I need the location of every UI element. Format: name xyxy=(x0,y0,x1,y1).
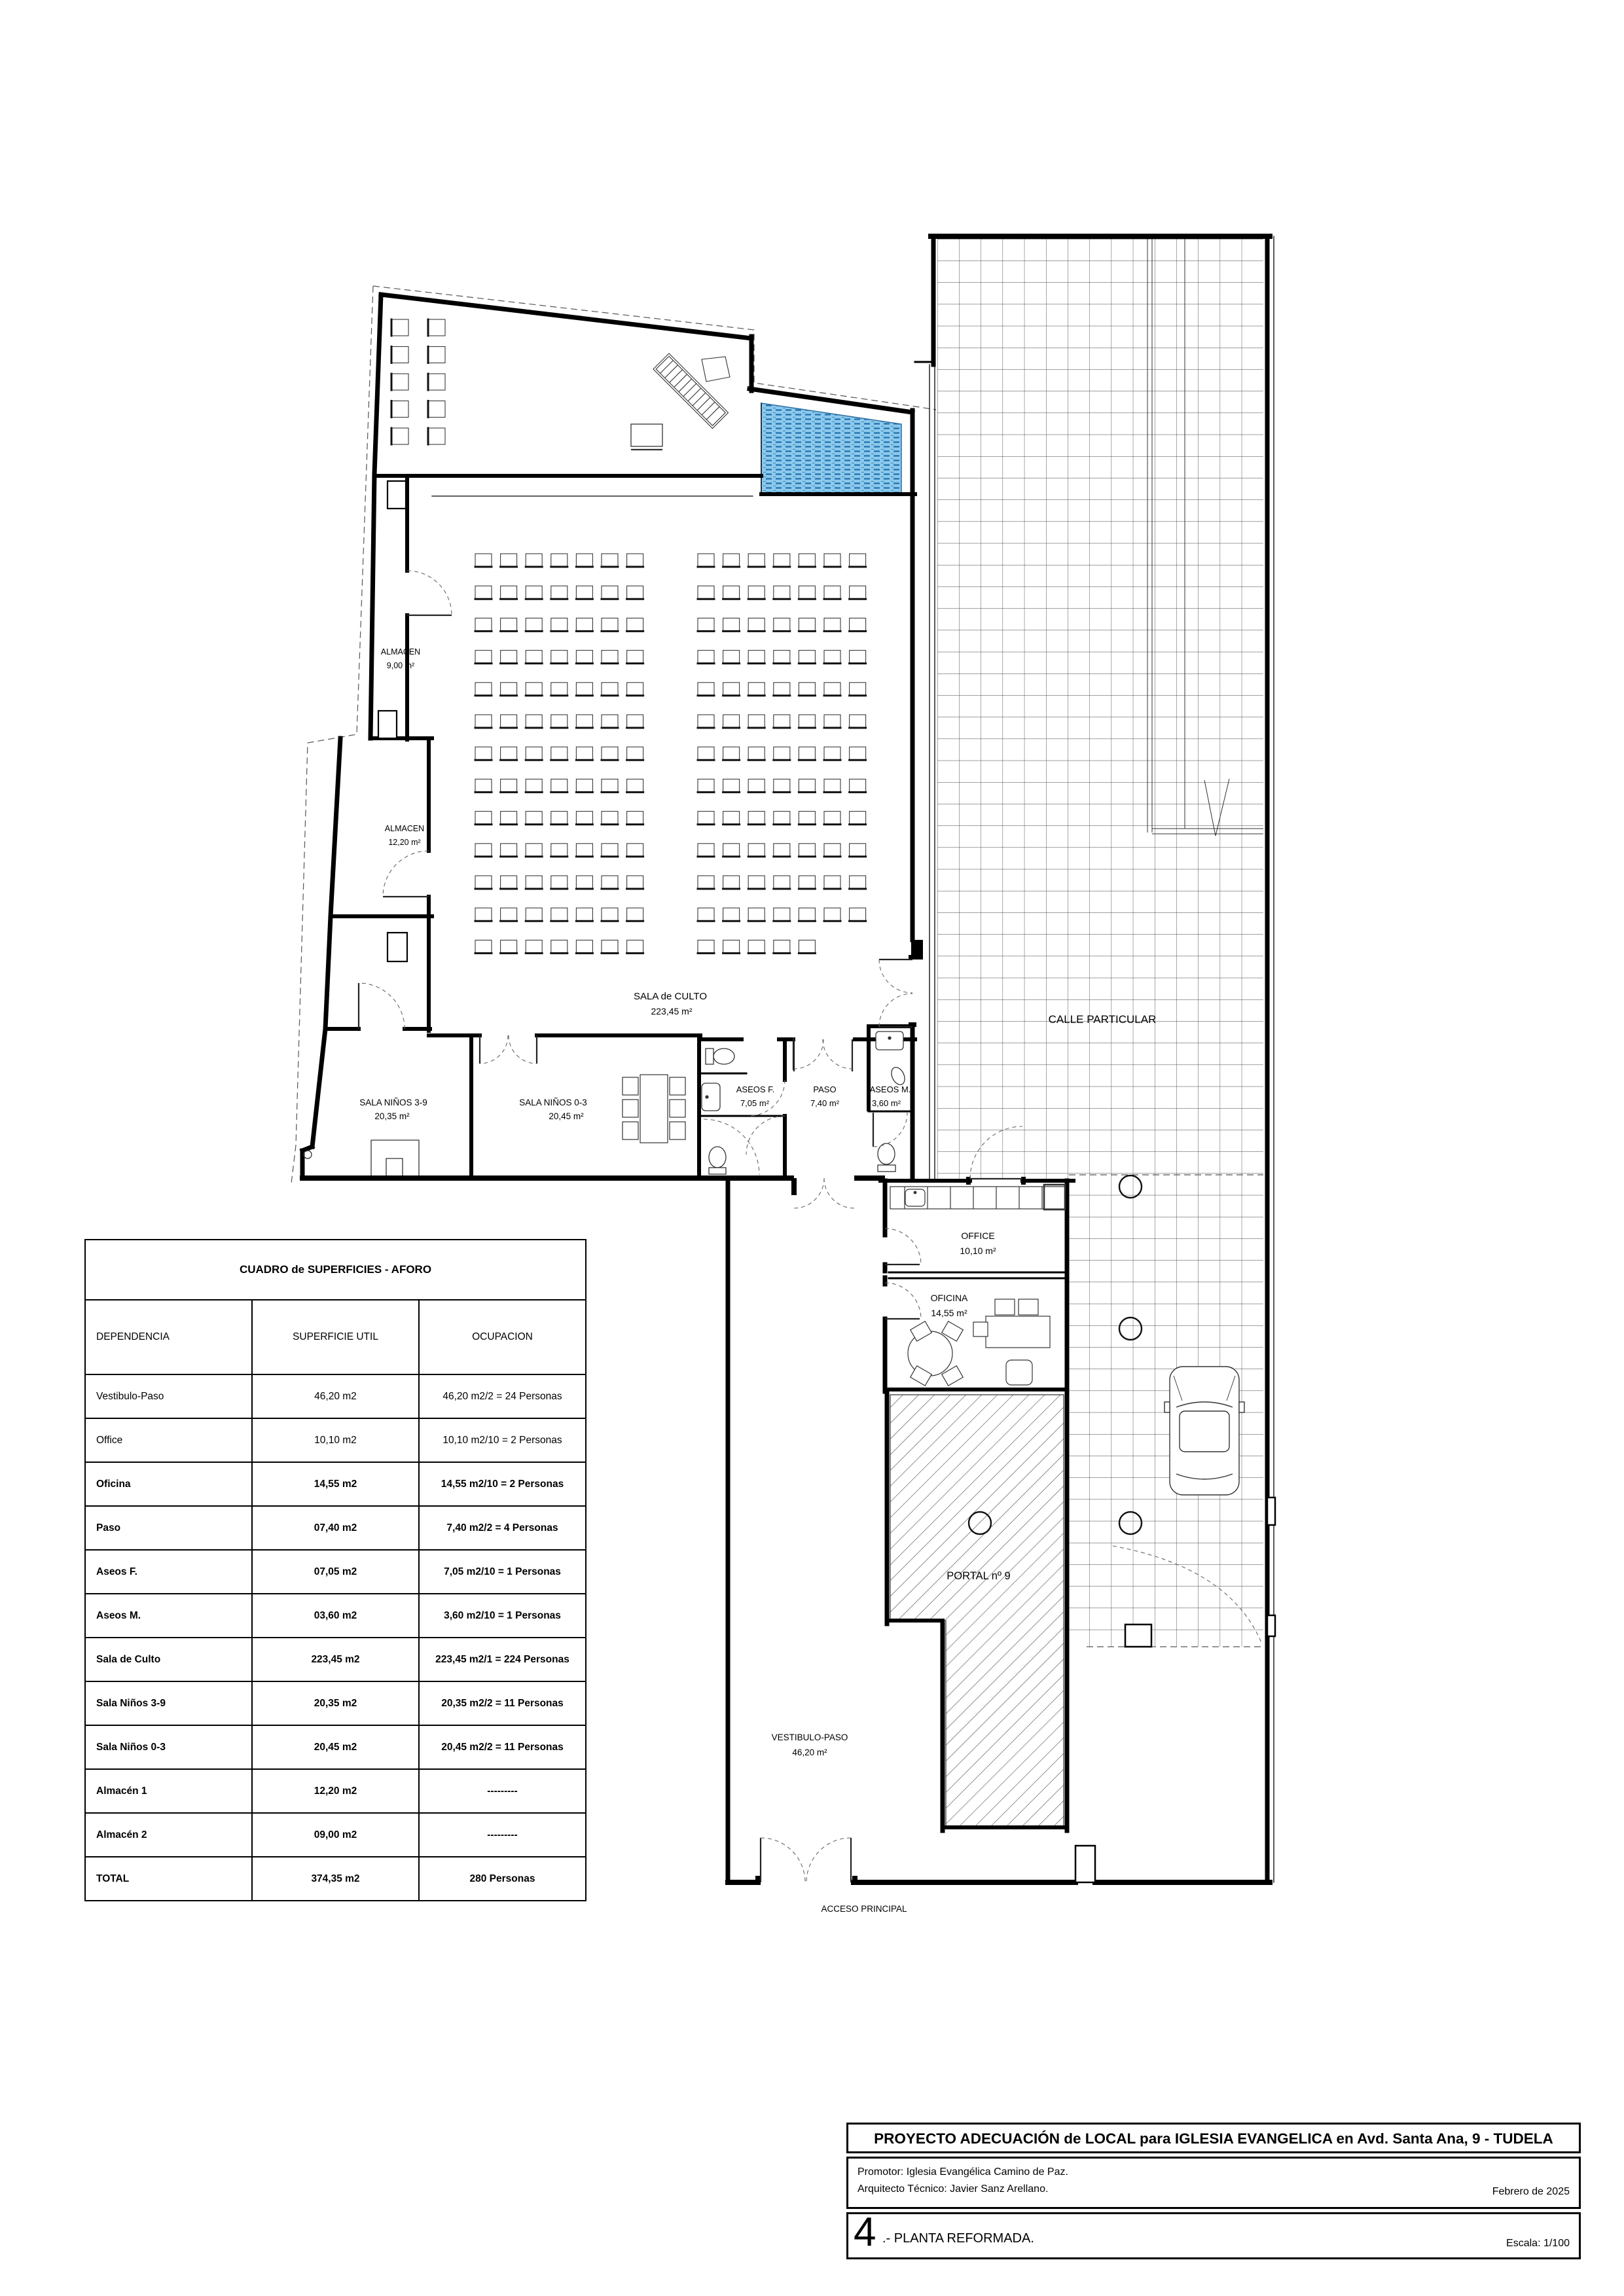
scale-label: Escala: 1/100 xyxy=(1506,2238,1570,2250)
table-row: Sala Niños 3-920,35 m220,35 m2/2 = 11 Pe… xyxy=(85,1681,586,1725)
stage-stairs xyxy=(653,353,730,429)
table-row: Sala Niños 0-320,45 m220,45 m2/2 = 11 Pe… xyxy=(85,1725,586,1769)
promoter-line: Promotor: Iglesia Evangélica Camino de P… xyxy=(857,2164,1570,2181)
table-row: Almacén 112,20 m2--------- xyxy=(85,1769,586,1813)
table-title: CUADRO de SUPERFICIES - AFORO xyxy=(85,1240,586,1300)
table-row: Vestibulo-Paso46,20 m246,20 m2/2 = 24 Pe… xyxy=(85,1374,586,1418)
date-label: Febrero de 2025 xyxy=(1492,2183,1570,2200)
col-header-ocupacion: OCUPACION xyxy=(419,1300,586,1374)
label-almacen2-area: 9,00 m² xyxy=(387,661,414,670)
table-row: Office10,10 m210,10 m2/10 = 2 Personas xyxy=(85,1418,586,1462)
title-block: PROYECTO ADECUACIÓN de LOCAL para IGLESI… xyxy=(846,2123,1581,2259)
table-row: Aseos F.07,05 m27,05 m2/10 = 1 Personas xyxy=(85,1550,586,1594)
label-sala-culto-area: 223,45 m² xyxy=(651,1006,692,1016)
aseos-f-fixtures xyxy=(702,1049,734,1174)
label-vestibulo: VESTIBULO-PASO xyxy=(772,1732,848,1742)
col-header-dependencia: DEPENDENCIA xyxy=(85,1300,252,1374)
label-sala-n03-area: 20,45 m² xyxy=(549,1111,584,1121)
label-paso-area: 7,40 m² xyxy=(810,1098,840,1108)
label-aseos-m-area: 3,60 m² xyxy=(872,1098,901,1108)
baptistery-pool xyxy=(761,403,901,493)
label-sala-n39-area: 20,35 m² xyxy=(374,1111,410,1121)
label-almacen1-area: 12,20 m² xyxy=(388,838,420,847)
label-calle: CALLE PARTICULAR xyxy=(1049,1013,1157,1026)
label-acceso: ACCESO PRINCIPAL xyxy=(821,1904,907,1914)
label-office: OFFICE xyxy=(961,1230,994,1241)
architect-line: Arquitecto Técnico: Javier Sanz Arellano… xyxy=(857,2181,1570,2198)
label-aseos-f: ASEOS F. xyxy=(736,1085,775,1094)
project-info: Promotor: Iglesia Evangélica Camino de P… xyxy=(846,2157,1581,2209)
label-sala-n03: SALA NIÑOS 0-3 xyxy=(519,1098,587,1107)
label-vestibulo-area: 46,20 m² xyxy=(792,1748,827,1757)
table-row: Oficina14,55 m214,55 m2/10 = 2 Personas xyxy=(85,1462,586,1506)
label-almacen2: ALMACEN xyxy=(381,647,420,656)
project-title: PROYECTO ADECUACIÓN de LOCAL para IGLESI… xyxy=(846,2123,1581,2153)
columns xyxy=(378,481,407,961)
floor-plan: ALMACEN 9,00 m² ALMACEN 12,20 m² SALA de… xyxy=(0,0,1624,2296)
table-row: TOTAL374,35 m2280 Personas xyxy=(85,1857,586,1901)
office-counter xyxy=(890,1185,1065,1210)
label-paso: PASO xyxy=(813,1085,836,1094)
table-row: Aseos M.03,60 m23,60 m2/10 = 1 Personas xyxy=(85,1594,586,1638)
table-row: Paso07,40 m27,40 m2/2 = 4 Personas xyxy=(85,1506,586,1550)
kids-table xyxy=(623,1075,685,1143)
label-aseos-m: ASEOS M. xyxy=(870,1085,911,1094)
oficina-furniture xyxy=(908,1299,1050,1386)
label-aseos-f-area: 7,05 m² xyxy=(740,1098,770,1108)
table-row: Almacén 209,00 m2--------- xyxy=(85,1813,586,1857)
label-oficina: OFICINA xyxy=(931,1293,968,1303)
label-portal: PORTAL nº 9 xyxy=(947,1570,1010,1582)
label-sala-culto: SALA de CULTO xyxy=(634,991,707,1002)
col-header-superficie: SUPERFICIE UTIL xyxy=(252,1300,419,1374)
sheet-info: 4 .- PLANTA REFORMADA. Escala: 1/100 xyxy=(846,2212,1581,2259)
duct-niche xyxy=(304,1140,419,1175)
drawing-sheet: ALMACEN 9,00 m² ALMACEN 12,20 m² SALA de… xyxy=(0,0,1624,2296)
label-sala-n39: SALA NIÑOS 3-9 xyxy=(359,1098,427,1107)
label-almacen1: ALMACEN xyxy=(385,824,424,833)
label-office-area: 10,10 m² xyxy=(960,1246,996,1256)
table-row: Sala de Culto223,45 m2223,45 m2/1 = 224 … xyxy=(85,1638,586,1681)
car xyxy=(1164,1367,1244,1495)
sheet-title: .- PLANTA REFORMADA. xyxy=(882,2231,1034,2246)
stage-lectern xyxy=(631,424,662,450)
label-oficina-area: 14,55 m² xyxy=(931,1308,967,1318)
sheet-number: 4 xyxy=(854,2209,876,2255)
portal-hatch xyxy=(890,1395,1064,1827)
areas-table: CUADRO de SUPERFICIES - AFORO DEPENDENCI… xyxy=(84,1239,586,1901)
